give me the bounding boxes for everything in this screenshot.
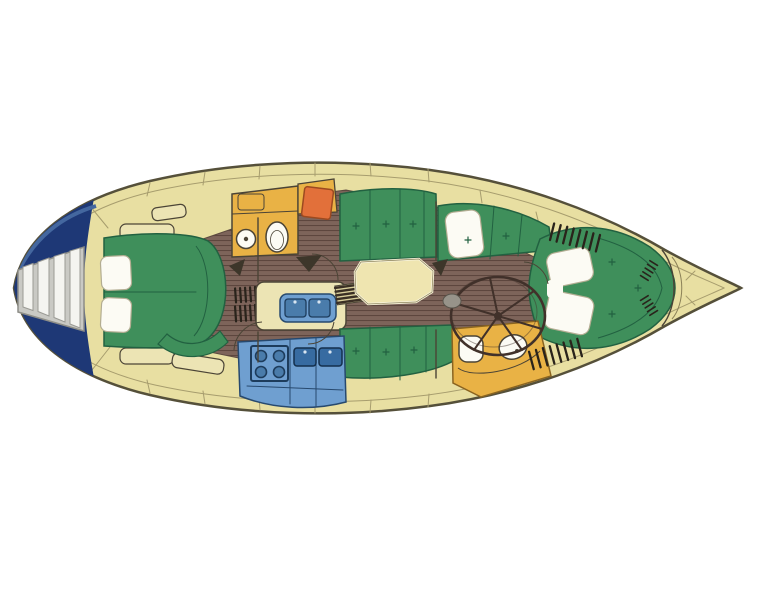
vberth-pillow [100,297,132,333]
quarter-berth-pillow [444,209,484,259]
island-faucet [293,300,296,303]
boat-floorplan-image [0,0,760,600]
anchor-platform-slat [23,264,33,311]
saloon-table [355,259,433,304]
stove-burner [256,351,267,362]
stove-burner [274,367,285,378]
galley-faucet [328,350,331,353]
anchor-platform-slat [38,258,49,316]
shower-seat [301,186,333,219]
boat-plan [0,0,760,600]
island-faucet [317,300,320,303]
stove-burner [274,351,285,362]
anchor-platform-slat [54,253,65,322]
forecabin-locker [120,348,174,364]
head-toilet [266,222,288,252]
saloon-settee-top [340,189,437,261]
steering-wheel-hub [494,312,502,320]
stove-burner [256,367,267,378]
head-sink-drain [244,237,248,241]
aft-berth-mattress-edge [547,280,563,298]
binnacle [443,294,461,308]
galley-faucet [303,350,306,353]
anchor-platform-slat [70,248,80,328]
vberth-pillow [100,255,132,291]
